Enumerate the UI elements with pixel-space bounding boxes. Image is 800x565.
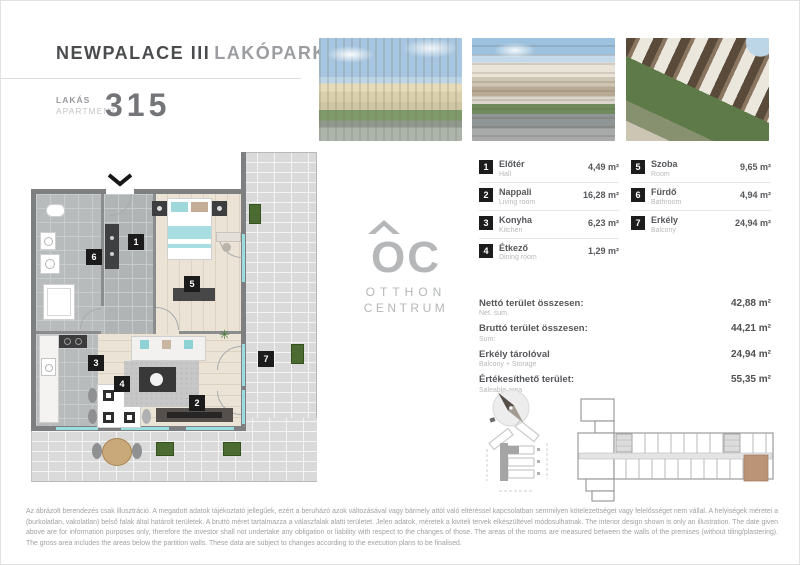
room-area: 9,65 m² [740,159,771,172]
plan-badge-5: 5 [184,276,200,292]
room-name: KonyhaKitchen [499,215,532,235]
room-number-badge: 4 [479,244,493,258]
washing-machine [40,254,60,274]
dining-chair [88,409,97,424]
room-row: 2NappaliLiving room16,28 m² [479,183,619,211]
plan-badge-1: 1 [128,234,144,250]
room-row: 5SzobaRoom9,65 m² [631,155,771,183]
place-setting [103,412,114,423]
wall-top-left [31,189,106,194]
sofa-pillow-teal [140,340,149,349]
room-list: 1ElőtérHall4,49 m² 2NappaliLiving room16… [479,155,771,266]
logo-word-1: OTTHON [353,285,459,299]
dining-chair [88,388,97,403]
room-row: 3KonyhaKitchen6,23 m² [479,211,619,239]
total-row: Erkély tárolóvalBalcony + Storage24,94 m… [479,349,771,369]
room-name: ErkélyBalcony [651,215,678,235]
logo-monogram: OC [353,235,459,281]
window-bottom-1 [56,427,98,430]
kitchen-counter [39,335,59,423]
room-area: 6,23 m² [588,215,619,228]
hall-wardrobe [105,224,119,269]
plan-badge-6: 6 [86,249,102,265]
room-number-badge: 3 [479,216,493,230]
bed-blanket [168,226,211,248]
render-photo-1 [319,38,462,141]
desk-chair [222,243,231,252]
sink-basin [44,237,53,246]
room-area: 4,49 m² [588,159,619,172]
bed [167,198,212,260]
kitchen-cooktop [59,335,87,348]
total-value: 24,94 m² [731,349,771,369]
pillow-teal [171,202,188,212]
window-bottom-3 [186,427,234,430]
balcony-table [102,438,132,466]
total-value: 42,88 m² [731,298,771,318]
total-label: Erkély tárolóvalBalcony + Storage [479,349,550,369]
nightstand-left [152,201,167,216]
building-key-plan [576,395,791,505]
render-photo-3 [626,38,769,141]
nightstand-right [212,201,227,216]
window-bedroom-balcony [242,234,245,282]
otthon-centrum-logo: OC OTTHON CENTRUM [353,217,459,315]
wall-top-right [134,189,246,194]
apartment-number: 315 [105,87,170,124]
dining-chair [142,409,151,424]
kitchen-sink [41,358,56,376]
room-row: 4ÉtkezőDining room1,29 m² [479,239,619,266]
total-row: Nettó terület összesen:Net. sum.42,88 m² [479,298,771,318]
site-map-diagram [475,419,567,501]
room-list-col-1: 1ElőtérHall4,49 m² 2NappaliLiving room16… [479,155,619,266]
project-suffix: LAKÓPARK [214,43,327,63]
disclaimer-text: Az ábrázolt berendezés csak illusztráció… [26,507,778,550]
bathroom-sink [40,232,56,250]
planter-box [223,442,241,456]
tv-screen [167,412,222,418]
logo-word-2: CENTRUM [353,301,459,315]
window-living-balcony-1 [242,344,245,386]
room-number-badge: 7 [631,216,645,230]
room-name: ElőtérHall [499,159,525,179]
sofa [131,336,206,361]
blanket-fold [168,239,211,244]
plan-badge-4: 4 [114,376,130,392]
washer-drum [45,259,55,269]
total-value: 55,35 m² [731,374,771,394]
room-name: FürdőBathroom [651,187,681,207]
wall-mid-left [36,331,101,334]
balcony-chair [92,443,102,459]
room-number-badge: 1 [479,160,493,174]
project-phase: III [191,43,211,63]
place-setting [103,390,114,401]
wall-mid-right [179,331,241,334]
room-name: ÉtkezőDining room [499,243,537,263]
total-label: Nettó terület összesen:Net. sum. [479,298,584,318]
project-title: NEWPALACE IIILAKÓPARK [56,43,327,64]
sofa-pillow-teal [184,340,193,349]
planter-box [249,204,261,224]
room-number-badge: 6 [631,188,645,202]
shower-inner [47,288,71,316]
planter-box [291,344,304,364]
place-setting [124,412,135,423]
plan-badge-2: 2 [189,395,205,411]
bedroom-desk [216,232,241,242]
room-area: 16,28 m² [583,187,619,200]
entrance-arrow-icon [106,172,134,188]
total-row: Bruttó terület összesen:Sum:44,21 m² [479,323,771,343]
room-area: 4,94 m² [740,187,771,200]
room-name: SzobaRoom [651,159,678,179]
toilet [46,204,65,217]
room-row: 6FürdőBathroom4,94 m² [631,183,771,211]
plan-badge-7: 7 [258,351,274,367]
floor-plan: ✳ 1 2 3 4 5 6 7 [26,146,318,486]
project-name: NEWPALACE [56,43,184,63]
balcony-chair [132,443,142,459]
room-number-badge: 5 [631,160,645,174]
room-name: NappaliLiving room [499,187,535,207]
room-number-badge: 2 [479,188,493,202]
room-row: 7ErkélyBalcony24,94 m² [631,211,771,238]
shower-tray [43,284,75,320]
pillow-tan [191,202,208,212]
render-photo-2 [472,38,615,141]
sofa-pillow-tan [162,340,171,349]
plan-badge-3: 3 [88,355,104,371]
floorplan-sheet: NEWPALACE IIILAKÓPARK LAKÁS APARTMENT 31… [0,0,800,565]
total-value: 44,21 m² [731,323,771,343]
room-area: 1,29 m² [588,243,619,256]
wall-left [31,189,36,431]
window-living-balcony-2 [242,390,245,424]
total-label: Bruttó terület összesen:Sum: [479,323,588,343]
highlighted-unit [744,455,768,481]
planter-box [156,442,174,456]
area-totals: Nettó terület összesen:Net. sum.42,88 m²… [479,298,771,400]
header-divider [1,78,301,79]
room-area: 24,94 m² [735,215,771,228]
plant-icon: ✳ [219,328,230,341]
room-list-col-2: 5SzobaRoom9,65 m² 6FürdőBathroom4,94 m² … [631,155,771,266]
coffee-table [139,367,176,392]
room-row: 1ElőtérHall4,49 m² [479,155,619,183]
